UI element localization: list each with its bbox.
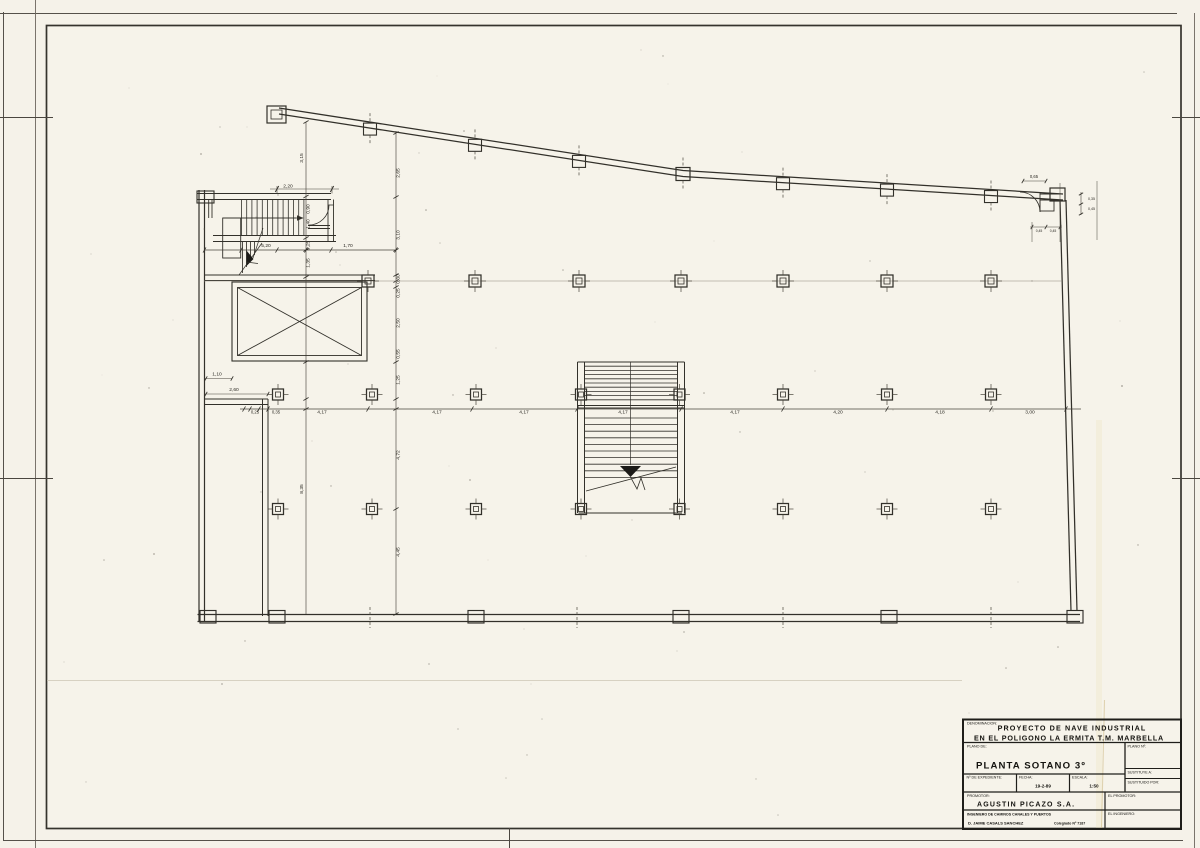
svg-text:DENOMINACION:: DENOMINACION:: [967, 722, 997, 726]
svg-text:EL PROMOTOR:: EL PROMOTOR:: [1108, 794, 1136, 798]
svg-text:4,20: 4,20: [833, 410, 843, 416]
svg-text:Colegiado Nº 7187: Colegiado Nº 7187: [1054, 822, 1085, 826]
svg-text:19-2-89: 19-2-89: [1035, 784, 1051, 789]
svg-text:1,40: 1,40: [306, 219, 312, 229]
svg-text:SUSTITUIDO POR:: SUSTITUIDO POR:: [1128, 781, 1160, 785]
svg-text:0,45: 0,45: [1050, 229, 1057, 233]
svg-text:0,30: 0,30: [396, 274, 402, 284]
svg-text:0,35: 0,35: [272, 410, 281, 415]
svg-text:0,55: 0,55: [396, 349, 402, 359]
svg-text:4,17: 4,17: [317, 410, 327, 416]
svg-text:PROYECTO DE NAVE INDUSTRIAL: PROYECTO DE NAVE INDUSTRIAL: [998, 724, 1147, 733]
svg-text:PROMOTOR:: PROMOTOR:: [967, 794, 990, 798]
svg-text:1,25: 1,25: [396, 375, 402, 385]
svg-text:5,20: 5,20: [261, 243, 271, 249]
svg-text:PLANTA SOTANO 3º: PLANTA SOTANO 3º: [976, 761, 1086, 772]
svg-text:INGENIERO DE CAMINOS CANALES Y: INGENIERO DE CAMINOS CANALES Y PUERTOS: [967, 813, 1052, 817]
svg-text:4,72: 4,72: [396, 450, 402, 460]
svg-text:4,45: 4,45: [396, 547, 402, 557]
svg-text:1,10: 1,10: [212, 372, 222, 378]
svg-text:4,17: 4,17: [432, 410, 442, 416]
svg-text:0,45: 0,45: [1088, 207, 1095, 211]
svg-text:0,65: 0,65: [1030, 174, 1039, 179]
svg-text:D. JAIME CASALS SANCHEZ: D. JAIME CASALS SANCHEZ: [968, 821, 1024, 826]
svg-text:PLANO Nº:: PLANO Nº:: [1128, 745, 1147, 749]
svg-text:EN EL POLIGONO LA ERMITA T.M.: EN EL POLIGONO LA ERMITA T.M. MARBELLA: [974, 734, 1164, 743]
svg-text:3,00: 3,00: [1025, 410, 1035, 416]
svg-text:PLANO DE:: PLANO DE:: [967, 745, 987, 749]
svg-text:4,17: 4,17: [519, 410, 529, 416]
svg-text:0,25: 0,25: [396, 288, 402, 298]
svg-text:2,20: 2,20: [283, 184, 293, 190]
svg-text:2,50: 2,50: [396, 318, 402, 328]
svg-text:4,18: 4,18: [935, 410, 945, 416]
svg-text:SUSTITUYE A:: SUSTITUYE A:: [1128, 771, 1152, 775]
svg-text:0,45: 0,45: [1036, 229, 1043, 233]
svg-text:0,35: 0,35: [1088, 197, 1095, 201]
svg-text:1:50: 1:50: [1089, 784, 1099, 789]
svg-text:0,25: 0,25: [306, 240, 312, 250]
svg-text:FECHA:: FECHA:: [1019, 776, 1033, 780]
svg-text:8,35: 8,35: [299, 484, 305, 494]
svg-text:EL INGENIERO:: EL INGENIERO:: [1108, 812, 1135, 816]
svg-text:3,10: 3,10: [396, 230, 402, 240]
svg-text:1,70: 1,70: [343, 243, 353, 249]
svg-text:2,65: 2,65: [396, 168, 402, 178]
svg-text:AGUSTIN PICAZO S.A.: AGUSTIN PICAZO S.A.: [977, 802, 1075, 809]
svg-text:Nº DE EXPEDIENTE:: Nº DE EXPEDIENTE:: [967, 776, 1003, 780]
svg-text:4,17: 4,17: [730, 410, 740, 416]
svg-text:3,15: 3,15: [299, 153, 305, 163]
svg-text:0,25: 0,25: [251, 410, 260, 415]
svg-text:2,60: 2,60: [229, 387, 239, 393]
svg-text:1,35: 1,35: [306, 258, 312, 268]
svg-text:4,17: 4,17: [618, 410, 628, 416]
svg-text:0,90: 0,90: [306, 204, 312, 214]
svg-text:ESCALA:: ESCALA:: [1072, 776, 1088, 780]
